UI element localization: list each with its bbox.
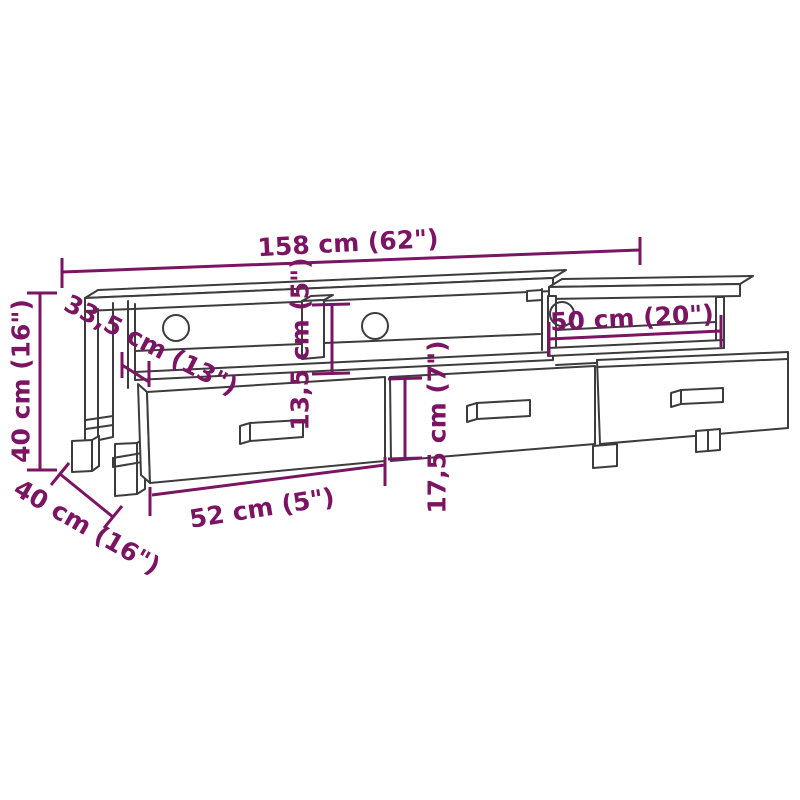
dim-shelf-opening-height-label: 13,5 cm (5") bbox=[286, 257, 315, 430]
left-legs bbox=[72, 436, 145, 496]
dimension-diagram: 158 cm (62") 40 cm (16") 33,5 cm (13") 1… bbox=[0, 0, 800, 800]
right-drawer-handle bbox=[681, 388, 723, 404]
dim-height: 40 cm (16") bbox=[7, 293, 58, 470]
dim-drawer-width-label: 52 cm (5") bbox=[187, 482, 336, 534]
dim-height-label: 40 cm (16") bbox=[7, 299, 36, 463]
connector-tab bbox=[527, 290, 542, 301]
tv-stand-dimension-drawing: 158 cm (62") 40 cm (16") 33,5 cm (13") 1… bbox=[0, 0, 800, 800]
middle-drawer-handle bbox=[477, 400, 530, 419]
right-drawer bbox=[597, 352, 788, 452]
middle-foot bbox=[593, 444, 617, 468]
cable-hole-middle bbox=[362, 313, 388, 339]
left-drawer bbox=[138, 377, 385, 483]
dim-drawer-front-height-label: 17,5 cm (7") bbox=[423, 340, 452, 513]
middle-drawer bbox=[390, 366, 595, 461]
dim-total-width-label: 158 cm (62") bbox=[257, 224, 439, 262]
